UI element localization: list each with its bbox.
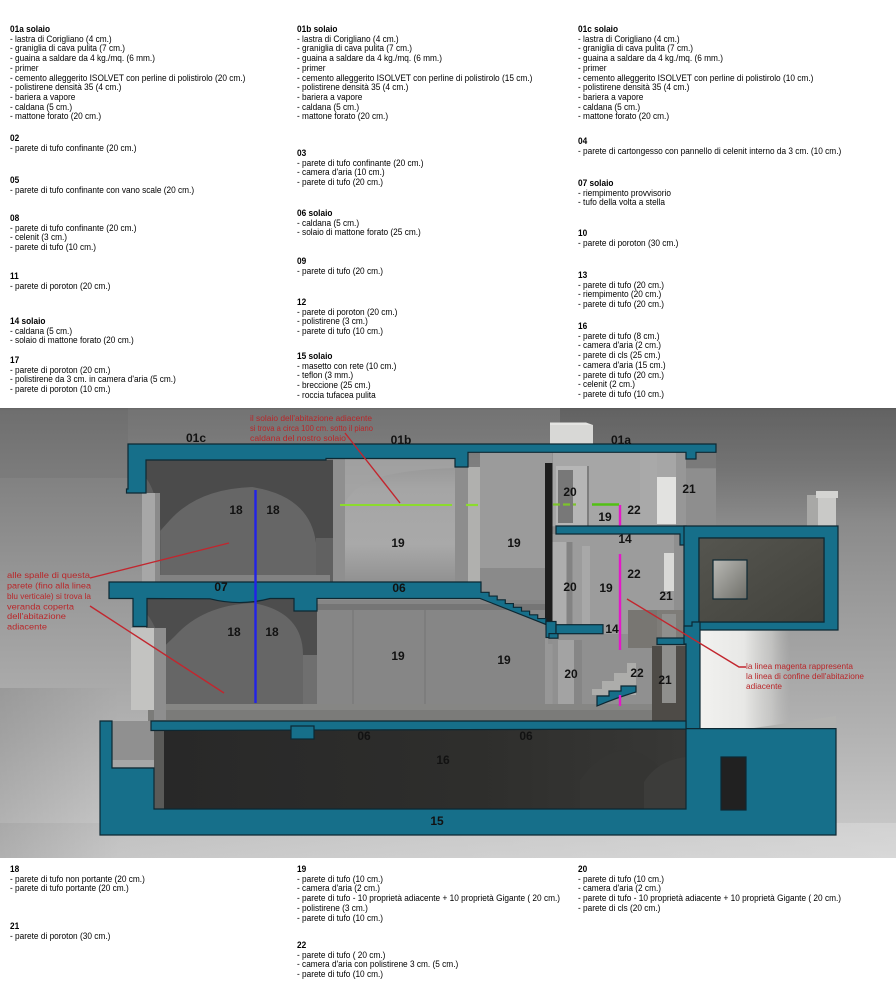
svg-text:22: 22 (627, 567, 641, 581)
svg-text:il solaio dell'abitazione adia: il solaio dell'abitazione adiacente (250, 413, 372, 423)
svg-text:01a: 01a (611, 433, 631, 447)
svg-text:15: 15 (430, 814, 444, 828)
svg-text:la linea di confine dell'abita: la linea di confine dell'abitazione (746, 671, 864, 681)
svg-text:06: 06 (519, 729, 533, 743)
svg-text:16: 16 (436, 753, 450, 767)
svg-text:veranda coperta: veranda coperta (7, 601, 74, 611)
svg-text:caldana del nostro solaio: caldana del nostro solaio (250, 433, 346, 443)
svg-text:blu verticale) si trova la: blu verticale) si trova la (7, 591, 91, 601)
svg-text:21: 21 (659, 589, 673, 603)
svg-text:20: 20 (563, 485, 577, 499)
svg-text:22: 22 (627, 503, 641, 517)
svg-text:06: 06 (392, 581, 406, 595)
svg-text:19: 19 (507, 536, 521, 550)
svg-text:20: 20 (563, 580, 577, 594)
svg-text:14: 14 (605, 622, 619, 636)
svg-text:la linea magenta rappresenta: la linea magenta rappresenta (746, 661, 853, 671)
svg-text:22: 22 (630, 666, 644, 680)
svg-text:14: 14 (618, 532, 632, 546)
svg-text:18: 18 (265, 625, 279, 639)
svg-text:dell'abitazione: dell'abitazione (7, 611, 66, 621)
svg-text:06: 06 (357, 729, 371, 743)
svg-text:18: 18 (227, 625, 241, 639)
svg-text:19: 19 (497, 653, 511, 667)
svg-text:07: 07 (214, 580, 228, 594)
svg-text:18: 18 (229, 503, 243, 517)
svg-text:19: 19 (598, 510, 612, 524)
svg-text:19: 19 (391, 536, 405, 550)
svg-text:01b: 01b (391, 433, 412, 447)
svg-text:19: 19 (599, 581, 613, 595)
svg-text:20: 20 (564, 667, 578, 681)
svg-text:21: 21 (682, 482, 696, 496)
svg-text:01c: 01c (186, 431, 206, 445)
svg-text:si trova a circa 100 cm. sotto: si trova a circa 100 cm. sotto il piano (250, 423, 373, 433)
svg-text:21: 21 (658, 673, 672, 687)
svg-text:adiacente: adiacente (746, 681, 782, 691)
svg-text:18: 18 (266, 503, 280, 517)
svg-text:adiacente: adiacente (7, 621, 47, 631)
svg-text:19: 19 (391, 649, 405, 663)
svg-text:parete (fino alla linea: parete (fino alla linea (7, 580, 91, 590)
svg-text:alle spalle di questa: alle spalle di questa (7, 570, 90, 580)
